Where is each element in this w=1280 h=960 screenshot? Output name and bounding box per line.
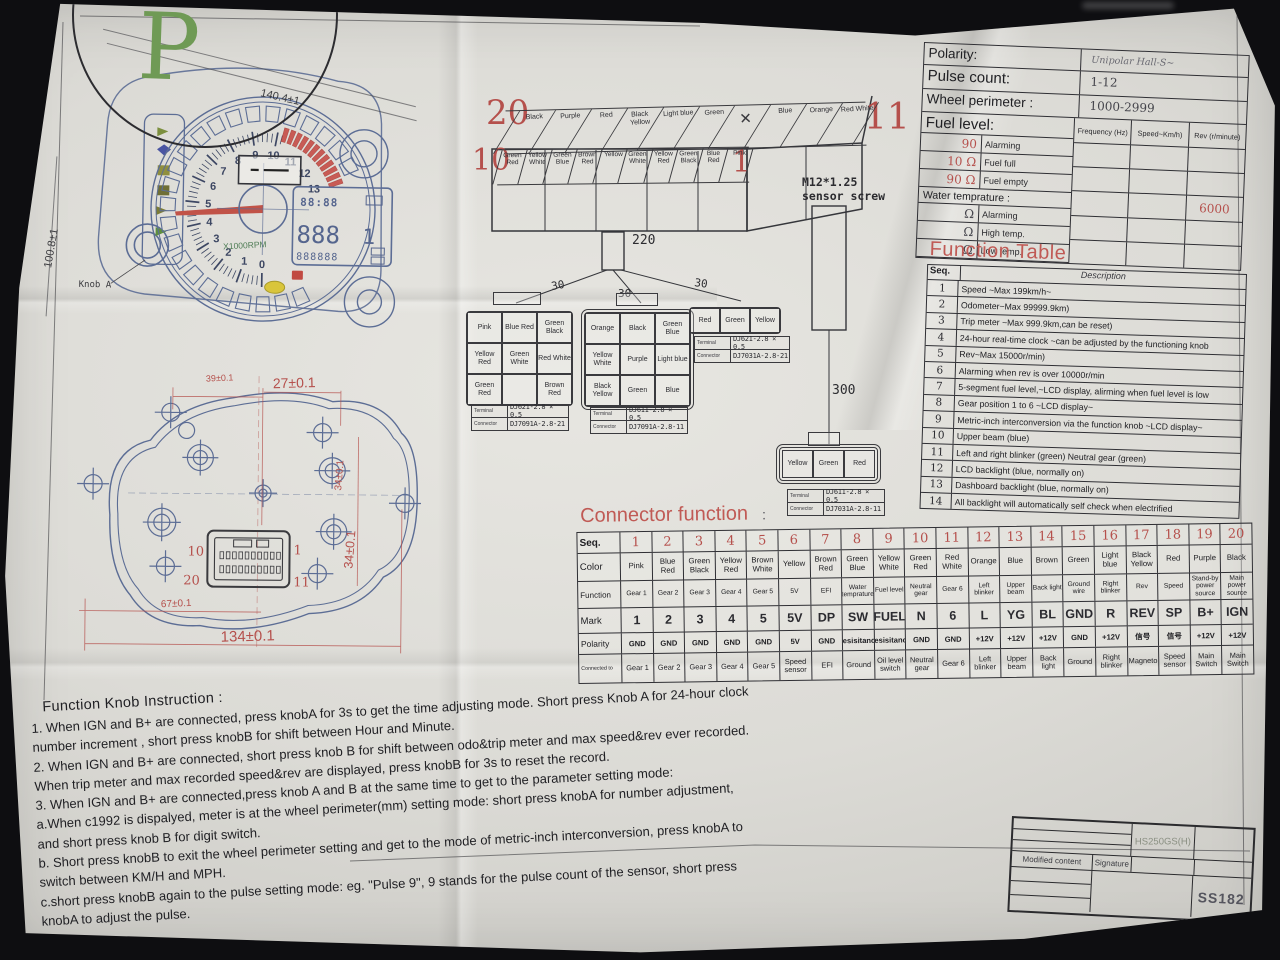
- tach-number: 1: [241, 256, 247, 268]
- function-seq: 12: [922, 460, 953, 476]
- ring-segment: [162, 176, 180, 192]
- pin-function-cell: Gear 4: [716, 580, 748, 606]
- function-seq: 1: [927, 280, 958, 296]
- pin-cell: Yellow White: [585, 344, 620, 375]
- minor-tick: [220, 146, 225, 153]
- pin-num-1: 1: [293, 543, 301, 558]
- pin-cell: Green White: [502, 343, 537, 374]
- pin-seq-cell: 6: [778, 530, 810, 550]
- pin-grid-row: YellowGreenRed: [782, 450, 875, 478]
- logo-p: P: [136, 1, 201, 95]
- row-label: Polarity: [579, 633, 622, 654]
- major-tick: [192, 176, 205, 182]
- date-cell: [1131, 857, 1195, 875]
- minor-tick: [194, 237, 202, 241]
- sensor-label-line2: sensor screw: [802, 189, 885, 203]
- pin-cell: Light blue: [655, 344, 690, 375]
- socket-pin: [270, 552, 274, 559]
- pin-grid-row: RedGreenYellow: [690, 308, 780, 333]
- needle: [175, 204, 263, 218]
- pin-block-a-part-labels: TerminalDJ621-2.8 × 0.5 ConnectorDJ7091A…: [471, 404, 569, 431]
- function-seq: 10: [923, 427, 954, 443]
- dim-39: 39±0.1: [206, 372, 234, 383]
- logo-letter: P: [136, 0, 202, 102]
- pin-function-cell: Gear 3: [684, 580, 716, 606]
- ring-segment: [274, 294, 290, 312]
- pin-cell: Pink: [467, 312, 502, 343]
- function-seq: 2: [927, 296, 958, 312]
- pin-seq-cell: 8: [842, 529, 874, 549]
- pin-color-cell: Blue: [1000, 548, 1032, 575]
- row-label: Color: [578, 553, 621, 581]
- pin-color-cell: Pink: [621, 553, 653, 580]
- minor-tick: [201, 248, 208, 254]
- freq-grid-cell: [1128, 218, 1186, 243]
- dim-67: 67±0.1: [161, 598, 192, 610]
- pin-color-cell: Orange: [968, 548, 1000, 575]
- minor-tick: [252, 275, 253, 284]
- wire-color-label: Blue: [768, 104, 803, 117]
- pin-function-cell: Gear 6: [937, 577, 969, 603]
- lcd-odometer: 888888: [296, 252, 338, 264]
- pin-cell: Red: [844, 450, 875, 478]
- function-seq: 4: [926, 329, 957, 345]
- minor-tick: [205, 160, 212, 166]
- pin-cell: Yellow: [782, 450, 813, 478]
- pin-seq-cell: 12: [968, 527, 1000, 547]
- pin-polarity-cell: GND: [906, 629, 938, 649]
- pin-color-cell: Blue Red: [652, 552, 684, 579]
- connector-value: DJ7091A-2.8-21: [508, 418, 568, 430]
- pin-color-cell: Green Black: [684, 552, 716, 579]
- pin-mark-cell: SW: [843, 605, 875, 629]
- knob-a-label: Knob A: [79, 280, 112, 291]
- pin-block-d: YellowGreenRed: [779, 447, 878, 481]
- pin-connected_to-cell: Main Switch: [1191, 646, 1223, 674]
- minor-tick: [204, 252, 211, 258]
- lcd-main-digits: 888: [296, 221, 340, 250]
- pin-seq-cell: 11: [936, 528, 968, 548]
- part-label-row: ConnectorDJ7091A-2.8-11: [591, 421, 687, 433]
- minor-tick: [267, 133, 268, 142]
- dim-height-label: 100.8±1: [42, 228, 61, 269]
- minor-tick: [192, 182, 200, 185]
- function-seq: 3: [926, 313, 957, 329]
- tach-number: 3: [213, 233, 219, 245]
- pin-mark-cell: SP: [1158, 600, 1190, 624]
- freq-grid-cell: [1072, 167, 1130, 192]
- pin-function-cell: 5V: [779, 579, 811, 605]
- socket-pin-numbers: 10 1 20 11: [183, 542, 310, 590]
- pin-mark-cell: DP: [811, 605, 843, 629]
- function-seq: 11: [922, 444, 953, 460]
- wire-color-label: Brown Red: [576, 149, 600, 166]
- pin-mark-cell: FUEL: [874, 604, 906, 628]
- pin-polarity-cell: +12V: [969, 628, 1001, 648]
- connector-wire-row-bottom: Green RedYellow WhiteGreen BlueBrown Red…: [497, 147, 749, 186]
- pin-polarity-cell: GND: [748, 631, 780, 651]
- lcd-panel: 88:88 888 1 888888: [292, 187, 392, 267]
- major-tick: [236, 269, 241, 282]
- pin-grid-row: Yellow WhitePurpleLight blue: [585, 344, 690, 375]
- pin-block-b-part-labels: TerminalDJ611-2.8 × 0.5 ConnectorDJ7091A…: [590, 407, 688, 434]
- resistance-label: Alarming: [982, 135, 1074, 156]
- function-seq: 13: [921, 477, 952, 493]
- fuel-rows: 90Alarming10 ΩFuel full90 ΩFuel empty: [919, 133, 1073, 193]
- pin-function-cell: Water temprature: [842, 578, 874, 604]
- pin-function-cell: Neutral gear: [905, 577, 937, 603]
- pin-seq-cell: 1: [620, 532, 652, 552]
- connector-label: Connector: [695, 350, 731, 362]
- wire-color-label: Light blue: [660, 106, 695, 119]
- pin-function-cell: Gear 1: [621, 581, 653, 607]
- drawing-code: SS182: [1197, 889, 1245, 907]
- minor-tick: [216, 149, 222, 156]
- pin-block-c: RedGreenYellow: [689, 307, 781, 334]
- pin-mark-cell: 5: [748, 606, 780, 630]
- pin-function-cell: Speed: [1158, 573, 1190, 599]
- connector-label: Connector: [472, 418, 508, 430]
- part-label-row: TerminalDJ611-2.8 × 0.5: [591, 408, 687, 421]
- resistance-label: Alarming: [979, 205, 1071, 226]
- minor-tick: [188, 220, 197, 222]
- sensor-body: [812, 206, 846, 330]
- ring-segment: [160, 216, 177, 232]
- pin-polarity-cell: +12V: [1222, 625, 1253, 645]
- housing-outline-inner: [116, 399, 410, 622]
- socket-pin: [277, 552, 281, 559]
- socket-pin: [270, 566, 274, 573]
- title-block: HS250GS(H) Modified content Signature SS…: [1007, 816, 1255, 924]
- freq-grid-cell: [1071, 191, 1129, 216]
- ring-segment: [300, 116, 319, 136]
- pin-seq-cell: 16: [1094, 525, 1126, 545]
- code-cell: SS182: [1191, 876, 1251, 920]
- minor-tick: [242, 273, 245, 282]
- pin-cell: Red: [690, 308, 720, 333]
- function-table: Function Table Seq. Description 1Speed ~…: [919, 238, 1247, 519]
- pin-seq-cell: 4: [715, 531, 747, 551]
- pin-mark-cell: N: [906, 604, 938, 628]
- resistance-label: Fuel full: [981, 153, 1073, 174]
- socket-pin: [226, 552, 230, 559]
- socket-pin: [233, 552, 237, 559]
- pin-cell: Red White: [537, 343, 572, 374]
- pin-cell: Green Blue: [655, 313, 690, 344]
- pin-seq-cell: 3: [684, 531, 716, 551]
- pin-polarity-cell: GND: [938, 629, 970, 649]
- pin-polarity-cell: Resisitance: [843, 630, 875, 650]
- ring-segment: [315, 126, 335, 146]
- pin-grid-row: Green RedBrown Red: [467, 374, 572, 405]
- pin-seq-cell: 18: [1157, 524, 1189, 544]
- wire-color-label: Red: [588, 108, 623, 121]
- tach-number: 5: [205, 198, 211, 210]
- minor-tick: [190, 228, 199, 231]
- minor-tick: [232, 270, 236, 278]
- resistance-value: 10 Ω: [920, 151, 982, 170]
- socket-pin: [226, 566, 230, 573]
- tach-number: 6: [210, 181, 216, 193]
- part-label-row: ConnectorDJ7091A-2.8-21: [472, 418, 568, 430]
- resistance-value: Ω: [917, 221, 979, 240]
- minor-tick: [192, 232, 200, 235]
- pin-grid-row: OrangeBlackGreen Blue: [585, 313, 690, 344]
- socket-pin: [277, 566, 281, 573]
- housing-dimensions: 39±0.1 27±0.1 34±0.1 34±0.1 67±0.1 134±0…: [79, 371, 403, 653]
- lcd-gear-digit: 1: [362, 225, 375, 249]
- connector-table-title-text: Connector function: [580, 503, 748, 527]
- function-seq: 9: [923, 411, 954, 427]
- pin-function-cell: Gear 2: [653, 580, 685, 606]
- parameter-table: Polarity: Unipolar Hall-S~ Pulse count: …: [915, 42, 1249, 271]
- pin-cell: Yellow: [750, 308, 780, 333]
- pin-grid-row: PinkBlue RedGreen Black: [467, 312, 572, 343]
- pin-block-c-part-labels: TerminalDJ621-2.8 × 0.5 ConnectorDJ7031A…: [694, 336, 790, 363]
- minor-tick: [187, 215, 196, 216]
- pin-color-cell: Brown: [1031, 547, 1063, 574]
- tach-number: 13: [308, 183, 320, 195]
- pin-mark-cell: R: [1095, 601, 1127, 625]
- minor-tick: [212, 153, 218, 160]
- wire-color-label: Blue Red: [701, 148, 725, 165]
- connector-value: DJ7091A-2.8-11: [627, 421, 687, 433]
- dim-34a: 34±0.1: [333, 459, 346, 491]
- pin-color-cell: Yellow White: [873, 549, 905, 576]
- tach-multiplier: X1000RPM: [223, 239, 267, 251]
- dim-27: 27±0.1: [273, 374, 316, 391]
- wire-color-label: Purple: [552, 109, 587, 122]
- terminal-label: Terminal: [472, 405, 508, 417]
- warning-icon: [292, 271, 303, 280]
- pin-function-cell: Rev: [1127, 574, 1159, 600]
- pin-color-cell: Yellow: [779, 551, 811, 578]
- socket-pin: [245, 552, 249, 559]
- wire-color-label: Pink: [727, 148, 751, 158]
- pin-mark-cell: 1: [621, 608, 653, 632]
- minor-tick: [196, 241, 204, 246]
- pin-polarity-cell: GND: [685, 632, 717, 652]
- callout-dashes: [251, 170, 289, 171]
- function-seq: 8: [924, 395, 955, 411]
- pin-polarity-cell: GND: [717, 632, 749, 652]
- freq-grid-cell: [1187, 172, 1244, 197]
- pin-seq-cell: 13: [999, 527, 1031, 547]
- pin-color-cell: Green: [1063, 547, 1095, 574]
- socket-pin: [239, 552, 243, 559]
- pin-block-b: OrangeBlackGreen BlueYellow WhitePurpleL…: [584, 312, 691, 407]
- pin-cell: Orange: [585, 313, 620, 344]
- wire-length-300: 300: [832, 383, 855, 398]
- title-colon: :: [762, 506, 766, 522]
- function-seq: 5: [925, 346, 956, 362]
- pin-function-cell: EFI: [811, 578, 843, 604]
- pin-cell: Green: [813, 450, 844, 478]
- pin-seq-cell: 7: [810, 529, 842, 549]
- pin-mark-cell: IGN: [1222, 600, 1253, 624]
- pin-seq-cell: 20: [1221, 524, 1252, 544]
- minor-tick: [190, 186, 199, 189]
- wire-color-label: Red White: [840, 102, 875, 115]
- minor-tick: [219, 264, 224, 272]
- resistance-label: Fuel empty: [980, 171, 1072, 192]
- photo-scene: gUp: [0, 0, 1280, 960]
- approval-row: [1010, 895, 1091, 912]
- minor-tick: [199, 168, 207, 173]
- minor-tick: [208, 255, 215, 261]
- pin-num-11: 11: [293, 575, 310, 590]
- model-stamp: HS250GS(H): [1131, 824, 1195, 859]
- pin-cell: Black: [620, 313, 655, 344]
- pin-block-a: PinkBlue RedGreen BlackYellow RedGreen W…: [466, 311, 573, 406]
- terminal-value: DJ621-2.8 × 0.5: [508, 405, 568, 417]
- pin-color-cell: Light blue: [1095, 546, 1127, 573]
- minor-tick: [223, 266, 228, 274]
- part-label-row: ConnectorDJ7031A-2.8-21: [695, 350, 789, 362]
- minor-tick: [188, 196, 197, 198]
- pin-color-cell: Purple: [1189, 545, 1221, 572]
- pin-polarity-cell: GND: [622, 633, 654, 653]
- pin-color-cell: Brown White: [747, 551, 779, 578]
- lcd-clock: 88:88: [300, 196, 338, 210]
- wire-color-label: Yellow: [602, 149, 626, 159]
- socket-pin: [220, 552, 224, 559]
- freq-grid-cell: 6000: [1186, 196, 1243, 221]
- pin-seq-cell: 5: [747, 530, 779, 550]
- pin-mark-cell: BL: [1032, 602, 1064, 626]
- pin-block-b-notch: [616, 293, 658, 306]
- pin-grid-row: Yellow RedGreen WhiteRed White: [467, 343, 572, 374]
- freq-grid-cell: [1073, 143, 1131, 168]
- pin-mark-cell: L: [969, 603, 1001, 627]
- pin-cell: [502, 374, 537, 405]
- terminal-label: Terminal: [591, 408, 627, 420]
- pin-polarity-cell: +12V: [1001, 628, 1033, 648]
- wire-length-30a: 30: [550, 278, 565, 293]
- tach-number: 0: [259, 259, 265, 271]
- wire-color-label: Green Red: [500, 150, 524, 167]
- pin-polarity-cell: GND: [811, 630, 843, 650]
- pin-mark-cell: GND: [1064, 602, 1096, 626]
- row-label: Function: [578, 581, 621, 608]
- freq-grid-cell: [1070, 216, 1128, 241]
- pin-seq-cell: 10: [905, 528, 937, 548]
- minor-tick: [196, 172, 204, 176]
- pin-mark-cell: 5V: [779, 606, 811, 630]
- pin-polarity-cell: +12V: [1032, 627, 1064, 647]
- function-table-body: 1Speed ~Max 199km/h~2Odometer~Max 99999.…: [921, 280, 1246, 518]
- housing-outline-outer: [108, 391, 418, 630]
- terminal-label: Terminal: [788, 490, 824, 502]
- sensor-label-line1: M12*1.25: [802, 175, 857, 189]
- minor-tick: [189, 191, 198, 193]
- wire-color-label: Green Blue: [551, 150, 575, 167]
- ring-segment: [292, 287, 310, 306]
- pin-function-cell: Gear 5: [747, 579, 779, 605]
- socket-pin: [264, 552, 268, 559]
- pin-mark-cell: REV: [1127, 601, 1159, 625]
- ring-segment: [183, 265, 203, 285]
- pin-function-cell: Main power source: [1221, 573, 1252, 599]
- minor-tick: [247, 274, 249, 283]
- pin-mark-cell: 2: [653, 607, 685, 631]
- pin-seq-cell: 15: [1063, 526, 1095, 546]
- pin-connected_to-cell: Main Switch: [1222, 646, 1253, 674]
- socket-pin: [258, 566, 262, 573]
- freq-grid-cell: [1188, 148, 1245, 173]
- company-cell: [1194, 827, 1253, 862]
- freq-grid-cell: [1129, 170, 1187, 195]
- socket-pin: [245, 566, 249, 573]
- pin-function-cell: Ground wire: [1063, 575, 1095, 601]
- pin-seq-cell: 9: [873, 528, 905, 548]
- pin-function-cell: Stand-by power source: [1190, 573, 1222, 599]
- freq-header-cell: Frequency (Hz): [1074, 118, 1132, 144]
- approval-rows: [1010, 867, 1093, 912]
- function-seq: 6: [925, 362, 956, 378]
- pin-cell: Blue Red: [502, 312, 537, 343]
- pin-cell: Purple: [620, 344, 655, 375]
- ring-segment: [216, 287, 234, 306]
- part-label-row: TerminalDJ621-2.8 × 0.5: [695, 337, 789, 350]
- scale-cell: [1090, 871, 1193, 917]
- pin-cell: Green Black: [537, 312, 572, 343]
- pin-mark-cell: 3: [685, 607, 717, 631]
- wire-color-label: Orange: [804, 103, 839, 116]
- pin-cell: Blue: [655, 375, 690, 406]
- wire-color-label: Green Black: [676, 148, 700, 165]
- pin-mark-cell: B+: [1190, 600, 1222, 624]
- minor-tick: [271, 134, 272, 143]
- pin-cell: Green: [720, 308, 750, 333]
- pin-function-cell: Upper beam: [1000, 576, 1032, 602]
- socket-pin: [232, 566, 236, 573]
- pin-function-cell: Back light: [1032, 575, 1064, 601]
- tach-number: 7: [220, 166, 226, 178]
- pin-color-cell: Green Red: [905, 549, 937, 576]
- wire-length-30c: 30: [694, 276, 709, 291]
- freq-grid-cell: [1185, 220, 1242, 245]
- paper-sheet: 012345678910111213 X1000RPM 88:88 888 1 …: [0, 0, 1280, 960]
- pin-seq-cell: 14: [1031, 526, 1063, 546]
- wire-color-label: Yellow Red: [651, 148, 675, 165]
- freq-header-cell: Speed~Km/h): [1131, 120, 1189, 146]
- pin-color-cell: Yellow Red: [715, 552, 747, 579]
- function-seq: 7: [924, 378, 955, 394]
- ring-segment: [198, 277, 217, 297]
- pin-block-a-notch: [493, 292, 541, 305]
- fuel-warning-icon: [265, 281, 285, 293]
- rear-connector-socket: [207, 531, 289, 588]
- pin-cell: Black Yellow: [585, 375, 620, 406]
- pin-polarity-cell: +12V: [1190, 625, 1222, 645]
- centerline-vertical: [257, 376, 259, 648]
- wire-color-label: Black: [517, 110, 552, 123]
- terminal-value: DJ611-2.8 × 0.5: [627, 408, 687, 420]
- pin-grid-row: Black YellowGreenBlue: [585, 375, 690, 406]
- socket-pin: [251, 552, 255, 559]
- pin-mark-cell: YG: [1001, 603, 1033, 627]
- pin-seq-cell: 19: [1189, 524, 1221, 544]
- socket-pin: [251, 566, 255, 573]
- model-number: HS250GS(H): [1135, 836, 1191, 847]
- row-label: Seq.: [577, 532, 620, 553]
- dim-34b: 34±0.1: [341, 530, 358, 569]
- pin-color-cell: Brown Red: [810, 550, 842, 577]
- row-label: Mark: [578, 608, 621, 633]
- pin-num-20: 20: [183, 573, 200, 588]
- freq-header-cell: Rev (r/minute): [1189, 123, 1246, 149]
